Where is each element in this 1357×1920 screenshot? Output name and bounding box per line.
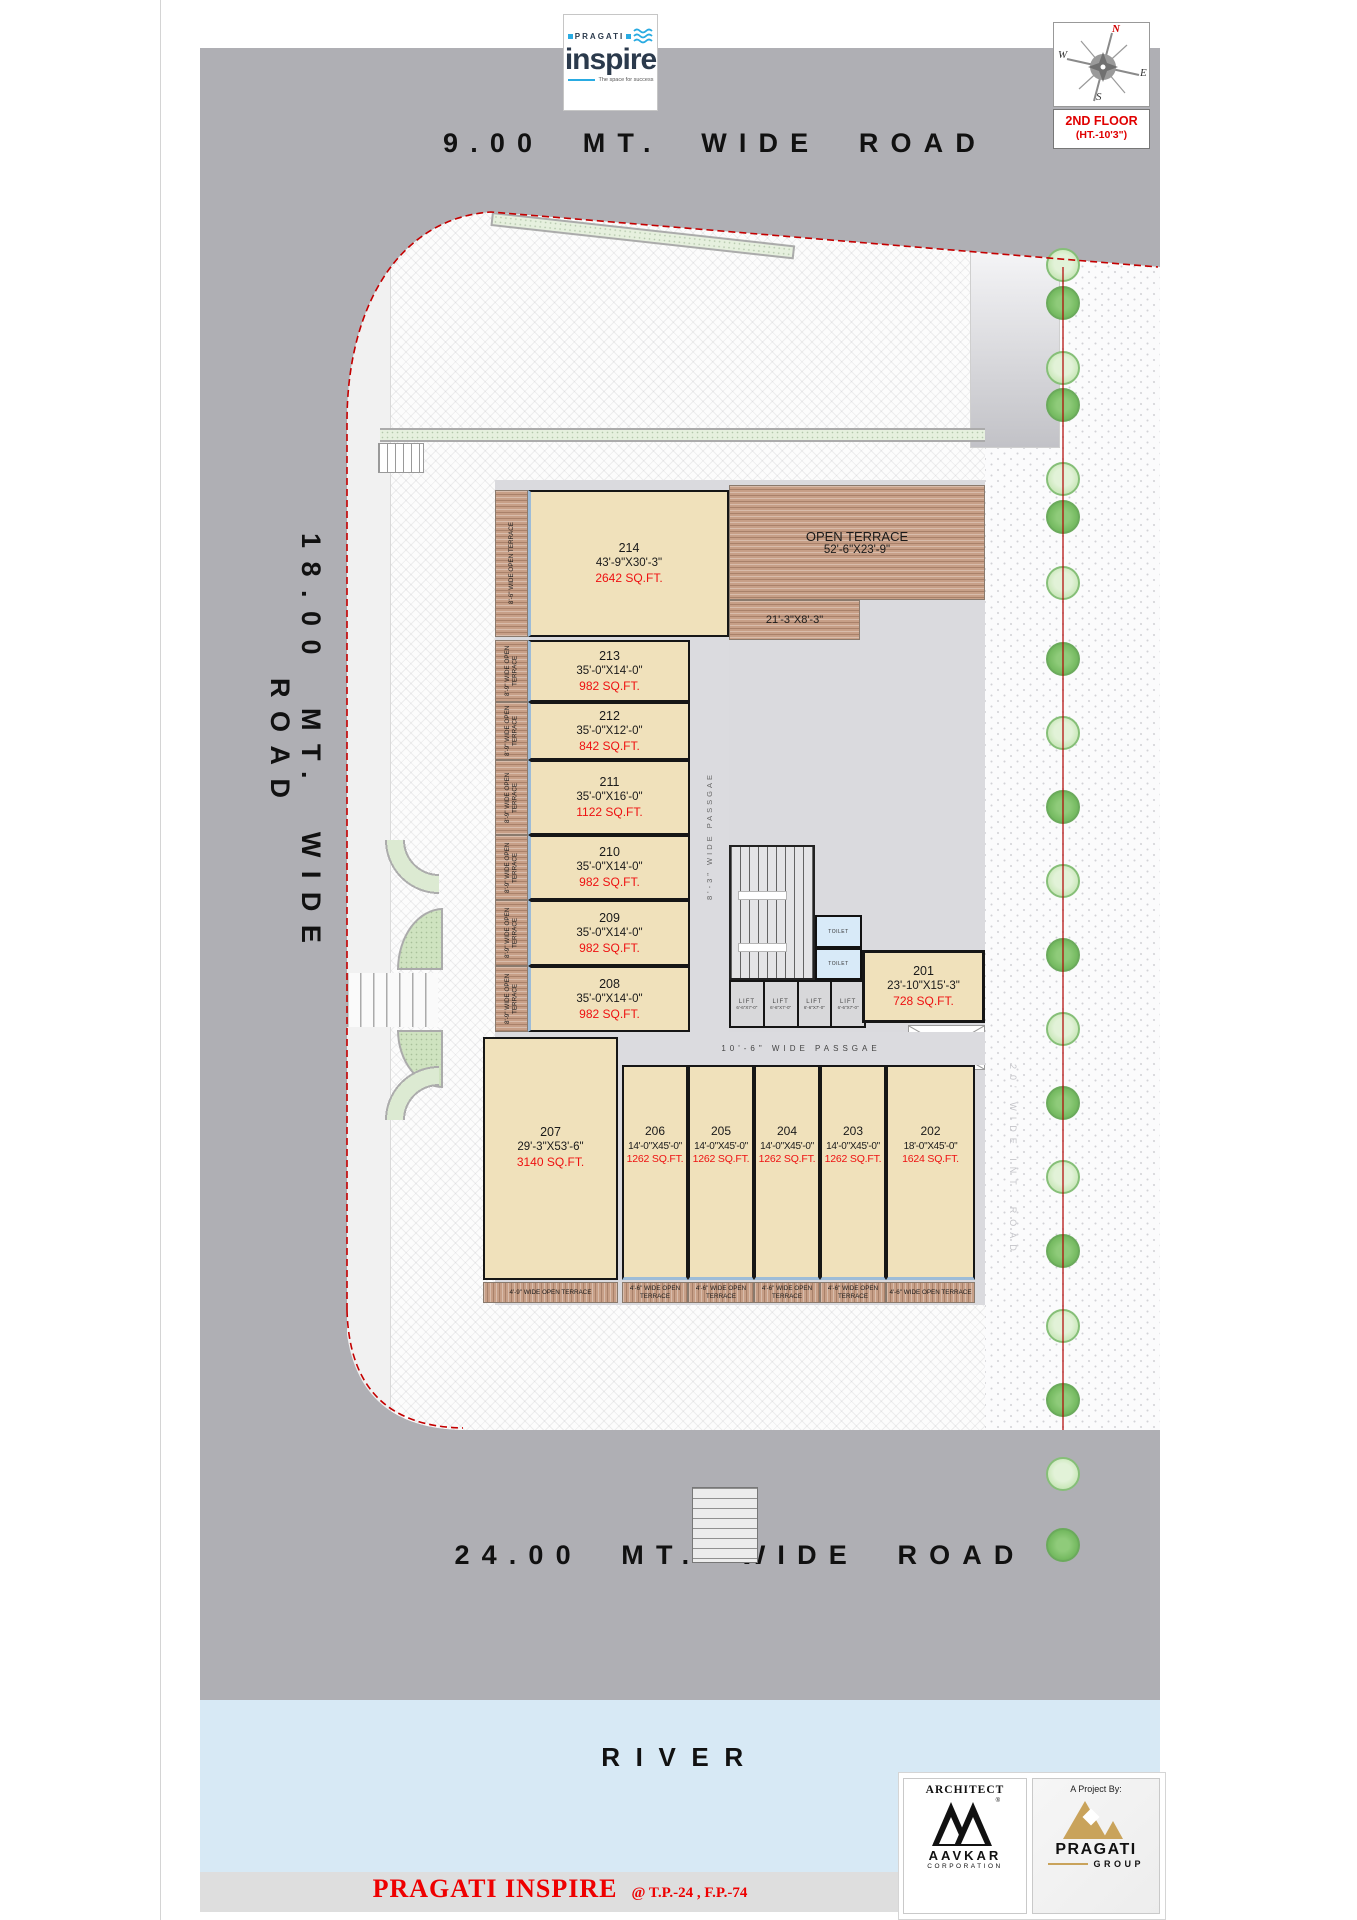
terrace-strip-label: 8'-6" WIDE OPEN TERRACE — [508, 522, 516, 604]
tree-icon — [1046, 1528, 1080, 1562]
lift-bank: LIFT6'-6"X7'-0" LIFT6'-6"X7'-0" LIFT6'-6… — [729, 980, 864, 1028]
compass-rose-icon — [1054, 23, 1151, 108]
aavkar-logo-icon: ® — [932, 1800, 998, 1848]
unit-number: 202 — [920, 1124, 940, 1140]
tree-icon — [1046, 462, 1080, 496]
terrace-strip-214: 8'-6" WIDE OPEN TERRACE — [495, 490, 528, 637]
toilet-bottom: TOILET — [815, 948, 862, 980]
terrace-strip-210: 8'-9" WIDE OPEN TERRACE — [495, 835, 528, 900]
tree-icon — [1046, 500, 1080, 534]
unit-number: 204 — [777, 1124, 797, 1140]
unit-number: 208 — [599, 976, 620, 992]
tree-icon — [1046, 790, 1080, 824]
unit-area: 2642 SQ.FT. — [595, 571, 662, 587]
unit-dim: 18'-0"X45'-0" — [904, 1140, 958, 1153]
terrace-label: 4'-6" WIDE OPEN TERRACE — [889, 1289, 971, 1297]
architect-name: AAVKAR — [929, 1848, 1002, 1863]
site-plan: 8'-6" WIDE OPEN TERRACE 8'-9" WIDE OPEN … — [345, 210, 1160, 1430]
road-label-left: 18.00 MT. WIDE ROAD — [264, 455, 326, 1035]
project-by-header: A Project By: — [1070, 1784, 1122, 1794]
lift-4: LIFT6'-6"X7'-0" — [830, 980, 866, 1028]
tree-icon — [1046, 1234, 1080, 1268]
unit-dim: 35'-0"X14'-0" — [576, 664, 642, 679]
lift-1: LIFT6'-6"X7'-0" — [729, 980, 765, 1028]
compass-w: W — [1058, 49, 1067, 61]
unit-number: 207 — [540, 1124, 561, 1140]
terrace-strip-label: 8'-9" WIDE OPEN TERRACE — [504, 761, 519, 834]
terrace-strip-label: 8'-9" WIDE OPEN TERRACE — [504, 967, 519, 1031]
vertical-passage-label: 8'-3" WIDE PASSGAE — [705, 772, 714, 900]
unit-dim: 23'-10"X15'-3" — [887, 979, 960, 994]
compass-s: S — [1096, 91, 1102, 103]
ramp — [970, 248, 1060, 448]
terrace-strip-label: 8'-9" WIDE OPEN TERRACE — [504, 641, 519, 701]
open-terrace-sub-dim: 21'-3"X8'-3" — [766, 614, 823, 626]
unit-dim: 35'-0"X14'-0" — [576, 860, 642, 875]
unit-207: 207 29'-3"X53'-6" 3140 SQ.FT. — [483, 1037, 618, 1280]
steps-top-left — [378, 443, 424, 473]
logo-waves-icon — [633, 28, 655, 44]
unit-206: 206 14'-0"X45'-0" 1262 SQ.FT. — [622, 1065, 688, 1280]
terrace-label: 4'-6" WIDE OPEN TERRACE — [689, 1285, 753, 1300]
toilet-top: TOILET — [815, 915, 862, 948]
tree-icon — [1046, 286, 1080, 320]
tree-icon — [1046, 1160, 1080, 1194]
unit-dim: 35'-0"X14'-0" — [576, 992, 642, 1007]
stair-landing — [738, 943, 788, 952]
logo-tagline-row: The space for success — [568, 77, 654, 83]
tree-icon — [1046, 716, 1080, 750]
project-ref: @ T.P.-24 , F.P.-74 — [632, 1885, 748, 1902]
unit-area: 982 SQ.FT. — [579, 875, 640, 891]
unit-area: 1262 SQ.FT. — [825, 1153, 882, 1167]
logo-underline — [568, 79, 596, 81]
terrace-label: 4'-6" WIDE OPEN TERRACE — [623, 1285, 687, 1300]
driveway-curve-bottom — [349, 1050, 439, 1120]
lift-dim: 6'-6"X7'-0" — [770, 1005, 791, 1010]
lift-2: LIFT6'-6"X7'-0" — [763, 980, 799, 1028]
terrace-label: 4'-6" WIDE OPEN TERRACE — [755, 1285, 819, 1300]
unit-dim: 14'-0"X45'-0" — [760, 1140, 814, 1153]
unit-dim: 29'-3"X53'-6" — [517, 1140, 583, 1155]
road-label-internal: 20' WIDE INT. ROAD — [1008, 995, 1018, 1325]
sidewalk-strip — [345, 210, 391, 1430]
unit-203: 203 14'-0"X45'-0" 1262 SQ.FT. — [820, 1065, 886, 1280]
terrace-label: 4'-6" WIDE OPEN TERRACE — [821, 1285, 885, 1300]
unit-dim: 14'-0"X45'-0" — [826, 1140, 880, 1153]
tree-icon — [1046, 566, 1080, 600]
project-title: PRAGATI INSPIRE — [373, 1874, 618, 1904]
terrace-206: 4'-6" WIDE OPEN TERRACE — [622, 1282, 688, 1303]
unit-area: 1122 SQ.FT. — [576, 805, 642, 821]
logo-brand-text: PRAGATI — [575, 32, 624, 41]
terrace-strip-212: 8'-9" WIDE OPEN TERRACE — [495, 702, 528, 760]
unit-dim: 14'-0"X45'-0" — [694, 1140, 748, 1153]
open-terrace-dim: 52'-6"X23'-9" — [824, 544, 890, 556]
terrace-204: 4'-6" WIDE OPEN TERRACE — [754, 1282, 820, 1303]
brand-logo: PRAGATI inspire The space for success — [563, 14, 658, 111]
unit-area: 3140 SQ.FT. — [517, 1155, 584, 1171]
vertical-passage: 8'-3" WIDE PASSGAE — [690, 640, 729, 1032]
unit-202: 202 18'-0"X45'-0" 1624 SQ.FT. — [886, 1065, 975, 1280]
unit-number: 211 — [600, 774, 620, 790]
unit-dim: 35'-0"X12'-0" — [576, 724, 642, 739]
unit-area: 982 SQ.FT. — [579, 941, 640, 957]
driveway-curve-top — [349, 840, 439, 904]
compass: N W E S — [1053, 22, 1150, 107]
unit-area: 1262 SQ.FT. — [693, 1153, 750, 1167]
unit-area: 728 SQ.FT. — [893, 994, 954, 1010]
terrace-207: 4'-9" WIDE OPEN TERRACE — [483, 1282, 618, 1303]
terrace-strip-208: 8'-9" WIDE OPEN TERRACE — [495, 966, 528, 1032]
project-by-box: A Project By: PRAGATI GROUP — [1032, 1778, 1160, 1914]
tree-icon — [1046, 1309, 1080, 1343]
unit-210: 210 35'-0"X14'-0" 982 SQ.FT. — [528, 835, 690, 900]
tree-icon — [1046, 1457, 1080, 1491]
unit-213: 213 35'-0"X14'-0" 982 SQ.FT. — [528, 640, 690, 702]
unit-209: 209 35'-0"X14'-0" 982 SQ.FT. — [528, 900, 690, 966]
terrace-strip-label: 8'-9" WIDE OPEN TERRACE — [504, 901, 519, 965]
tree-icon — [1046, 864, 1080, 898]
logo-brand-row: PRAGATI — [566, 28, 655, 44]
open-terrace-title: OPEN TERRACE — [806, 529, 908, 544]
architect-box: ARCHITECT ® AAVKAR CORPORATION — [903, 1778, 1027, 1914]
terrace-label: 4'-9" WIDE OPEN TERRACE — [509, 1289, 591, 1297]
horizontal-passage-label: 10'-6" WIDE PASSGAE — [721, 1044, 880, 1053]
unit-212: 212 35'-0"X12'-0" 842 SQ.FT. — [528, 702, 690, 760]
unit-208: 208 35'-0"X14'-0" 982 SQ.FT. — [528, 966, 690, 1032]
tree-icon — [1046, 1086, 1080, 1120]
horizontal-passage: 10'-6" WIDE PASSGAE — [617, 1032, 985, 1065]
project-sub: GROUP — [1093, 1859, 1144, 1869]
tree-icon — [1046, 388, 1080, 422]
unit-205: 205 14'-0"X45'-0" 1262 SQ.FT. — [688, 1065, 754, 1280]
toilet-label: TOILET — [828, 961, 848, 967]
terrace-205: 4'-6" WIDE OPEN TERRACE — [688, 1282, 754, 1303]
terrace-strip-209: 8'-9" WIDE OPEN TERRACE — [495, 900, 528, 966]
unit-number: 210 — [599, 844, 620, 860]
unit-204: 204 14'-0"X45'-0" 1262 SQ.FT. — [754, 1065, 820, 1280]
unit-area: 982 SQ.FT. — [579, 679, 640, 695]
river-label: RIVER — [200, 1742, 1160, 1773]
terrace-203: 4'-6" WIDE OPEN TERRACE — [820, 1282, 886, 1303]
unit-number: 213 — [599, 648, 620, 664]
page-border-line — [160, 0, 161, 1920]
unit-number: 212 — [599, 708, 620, 724]
tree-icon — [1046, 642, 1080, 676]
title-bar-text: PRAGATI INSPIRE @ T.P.-24 , F.P.-74 — [230, 1874, 890, 1904]
terrace-strip-label: 8'-9" WIDE OPEN TERRACE — [504, 836, 519, 899]
terrace-strip-label: 8'-9" WIDE OPEN TERRACE — [504, 703, 519, 759]
terrace-202: 4'-6" WIDE OPEN TERRACE — [886, 1282, 975, 1303]
unit-area: 842 SQ.FT. — [579, 739, 640, 755]
registered-mark: ® — [996, 1798, 1000, 1804]
driveway-crossing — [347, 973, 438, 1027]
unit-214: 214 43'-9"X30'-3" 2642 SQ.FT. — [528, 490, 729, 637]
unit-area: 1262 SQ.FT. — [627, 1153, 684, 1167]
compass-n: N — [1112, 23, 1120, 35]
tree-icon — [1046, 351, 1080, 385]
logo-square-icon — [568, 34, 573, 39]
planter-strip-horizontal — [380, 428, 985, 442]
compass-e: E — [1140, 67, 1147, 79]
unit-number: 205 — [711, 1124, 731, 1140]
logo-name-text: inspire — [565, 45, 656, 75]
tree-icon — [1046, 1012, 1080, 1046]
unit-dim: 35'-0"X16'-0" — [576, 790, 642, 805]
architect-sub: CORPORATION — [927, 1863, 1002, 1870]
unit-number: 214 — [619, 540, 640, 556]
open-terrace-deck: OPEN TERRACE 52'-6"X23'-9" — [729, 485, 985, 600]
unit-number: 206 — [645, 1124, 665, 1140]
unit-dim: 43'-9"X30'-3" — [596, 556, 662, 571]
terrace-strip-211: 8'-9" WIDE OPEN TERRACE — [495, 760, 528, 835]
tree-icon — [1046, 938, 1080, 972]
tree-icon — [1046, 248, 1080, 282]
floor-plan-canvas: 9.00 MT. WIDE ROAD 18.00 MT. WIDE ROAD 2… — [0, 0, 1357, 1920]
terrace-strip-213: 8'-9" WIDE OPEN TERRACE — [495, 640, 528, 702]
stair-landing — [738, 891, 788, 900]
unit-area: 982 SQ.FT. — [579, 1007, 640, 1023]
road-label-top: 9.00 MT. WIDE ROAD — [345, 128, 1085, 159]
pragati-group-logo-icon — [1061, 1797, 1131, 1841]
toilet-label: TOILET — [828, 929, 848, 935]
gold-line — [1048, 1863, 1088, 1865]
steps-bottom — [692, 1487, 758, 1563]
unit-201: 201 23'-10"X15'-3" 728 SQ.FT. — [862, 950, 985, 1023]
unit-area: 1624 SQ.FT. — [902, 1153, 959, 1167]
unit-dim: 14'-0"X45'-0" — [628, 1140, 682, 1153]
logo-square-icon — [626, 34, 631, 39]
architect-header: ARCHITECT — [926, 1784, 1005, 1796]
lift-dim: 6'-6"X7'-0" — [804, 1005, 825, 1010]
floor-label-line2: (HT.-10'3") — [1054, 129, 1149, 143]
staircase — [729, 845, 815, 980]
open-terrace-deck-sub: 21'-3"X8'-3" — [729, 600, 860, 640]
lift-3: LIFT6'-6"X7'-0" — [797, 980, 833, 1028]
lift-dim: 6'-6"X7'-0" — [838, 1005, 859, 1010]
unit-211: 211 35'-0"X16'-0" 1122 SQ.FT. — [528, 760, 690, 835]
unit-number: 209 — [599, 910, 620, 926]
unit-dim: 35'-0"X14'-0" — [576, 926, 642, 941]
floor-label-line1: 2ND FLOOR — [1054, 113, 1149, 129]
logo-tagline: The space for success — [598, 77, 653, 83]
tree-icon — [1046, 1383, 1080, 1417]
unit-number: 203 — [843, 1124, 863, 1140]
project-name: PRAGATI — [1055, 1841, 1136, 1859]
unit-number: 201 — [913, 963, 934, 979]
unit-area: 1262 SQ.FT. — [759, 1153, 816, 1167]
lift-dim: 6'-6"X7'-0" — [736, 1005, 757, 1010]
floor-label: 2ND FLOOR (HT.-10'3") — [1053, 109, 1150, 149]
